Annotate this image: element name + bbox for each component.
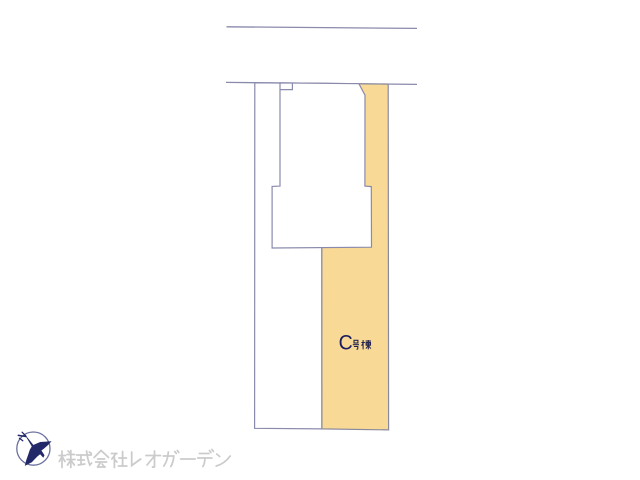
svg-text:C: C	[339, 332, 353, 355]
